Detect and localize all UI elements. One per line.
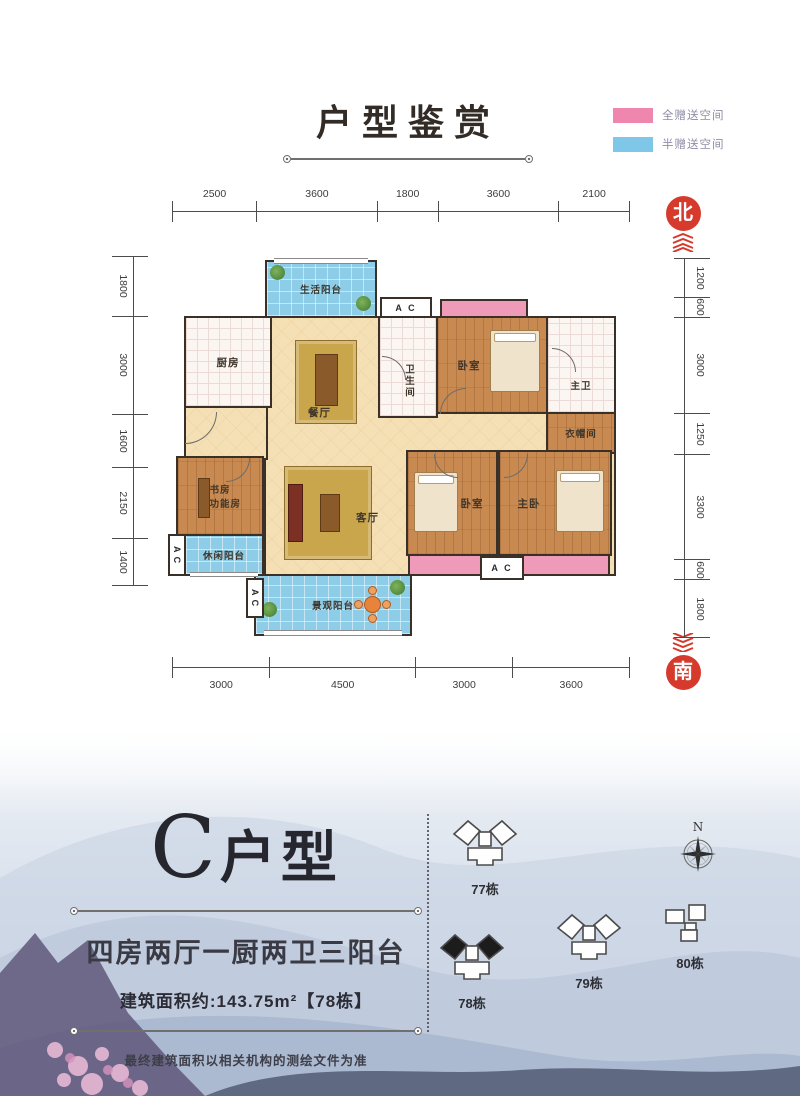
line-end-ring-icon	[414, 907, 422, 915]
desk-icon	[198, 478, 210, 518]
dimension-value: 3600	[257, 188, 377, 200]
dimension-value: 4500	[270, 679, 415, 691]
ac-platform-left: A C	[168, 534, 186, 576]
building-label: 78栋	[437, 993, 507, 1012]
dimension-value: 3600	[513, 679, 629, 691]
title-underline	[283, 155, 533, 163]
dimension-value: 1250	[694, 414, 706, 454]
building-77: 77栋	[450, 818, 520, 898]
legend-label: 半赠送空间	[662, 136, 725, 152]
building-77-icon	[451, 818, 519, 870]
room-label: 卧室	[458, 358, 481, 373]
building-label: 80栋	[662, 953, 718, 972]
full-gift-swatch-icon	[613, 108, 653, 123]
gift-bay-window-top	[440, 299, 528, 318]
room-label: 厨房	[217, 355, 240, 370]
ac-label: A C	[395, 303, 416, 313]
building-78-icon	[438, 932, 506, 984]
dimension-segment: 3000	[172, 657, 269, 678]
dimension-bottom: 3000450030003600	[172, 657, 630, 689]
bottom-section: C 户型 四房两厅一厨两卫三阳台 建筑面积约:143.75m²【78栋】 最终建…	[0, 728, 800, 1096]
floor-plan: 生活阳台 景观阳台 休闲阳台 厨房 卫生间 主卫 卧室 衣帽间 书房 多功能房	[168, 250, 668, 640]
ac-label: A C	[250, 589, 260, 607]
dimension-segment: 1400	[112, 538, 148, 586]
ac-platform-bottom: A C	[480, 556, 524, 580]
compass-n-label: N	[678, 820, 718, 834]
site-compass: N	[678, 820, 718, 879]
patio-chair-icon	[354, 600, 363, 609]
dimension-segment: 3600	[438, 201, 559, 222]
info-divider-top	[70, 907, 422, 915]
plant-icon	[390, 580, 405, 595]
dimension-value: 3000	[694, 345, 706, 385]
dimension-value: 2500	[173, 188, 256, 200]
room-label: 主卧	[518, 496, 541, 511]
line-end-ring-icon	[70, 907, 78, 915]
north-badge: 北	[663, 196, 703, 252]
dimension-segment: 1250	[674, 413, 710, 454]
dimension-segment: 1800	[377, 201, 438, 222]
unit-subtitle: 四房两厅一厨两卫三阳台	[70, 931, 422, 970]
ac-label: A C	[491, 563, 512, 573]
dimension-value: 1600	[117, 421, 129, 461]
dimension-value: 1400	[117, 542, 129, 582]
dimension-segment: 3000	[674, 317, 710, 413]
room-label: 生活阳台	[300, 282, 342, 296]
plant-icon	[262, 602, 277, 617]
building-label: 77栋	[450, 879, 520, 898]
plant-icon	[270, 265, 285, 280]
ac-label: A C	[172, 546, 182, 564]
poster-page: 户型鉴赏 全赠送空间 半赠送空间 北	[0, 0, 800, 1096]
dimension-segment: 4500	[269, 657, 415, 678]
dimension-value: 2100	[559, 188, 629, 200]
dimension-segment: 600	[674, 297, 710, 317]
dimension-right: 12006003000125033006001800	[674, 258, 710, 638]
page-header: 户型鉴赏	[283, 94, 533, 163]
room-label: 书房	[209, 482, 230, 496]
unit-title: C 户型	[70, 808, 422, 894]
info-divider-bottom	[70, 1027, 422, 1035]
window-icon	[274, 258, 368, 264]
plant-icon	[356, 296, 371, 311]
legend-label: 全赠送空间	[662, 107, 725, 123]
dimension-segment: 3600	[512, 657, 630, 678]
building-80-icon	[664, 902, 716, 944]
legend-row-full-gift: 全赠送空间	[613, 107, 725, 123]
bed-icon	[490, 330, 540, 392]
south-badge: 南	[663, 631, 703, 690]
page-title: 户型鉴赏	[283, 94, 533, 146]
dimension-segment: 2100	[558, 201, 630, 222]
dimension-segment: 2500	[172, 201, 256, 222]
bed-icon	[556, 470, 604, 532]
room-label-living: 客厅	[356, 510, 379, 525]
dimension-value: 3000	[416, 679, 512, 691]
window-icon	[264, 630, 402, 636]
dimension-segment: 2150	[112, 467, 148, 538]
north-circle: 北	[666, 196, 701, 231]
dimension-segment: 3600	[256, 201, 377, 222]
building-label: 79栋	[554, 973, 624, 992]
bed-icon	[414, 472, 458, 532]
dimension-segment: 3000	[112, 316, 148, 415]
dimension-value: 3000	[117, 345, 129, 385]
unit-disclaimer: 最终建筑面积以相关机构的测绘文件为准	[70, 1050, 422, 1069]
room-closet: 衣帽间	[546, 412, 616, 454]
room-label: 衣帽间	[565, 426, 597, 440]
line-end-ring-icon	[414, 1027, 422, 1035]
window-icon	[190, 572, 258, 577]
building-80: 80栋	[662, 902, 718, 972]
legend: 全赠送空间 半赠送空间	[613, 107, 725, 165]
patio-chair-icon	[368, 586, 377, 595]
patio-chair-icon	[368, 614, 377, 623]
dimension-value: 2150	[117, 483, 129, 523]
patio-chair-icon	[382, 600, 391, 609]
building-78-highlighted: 78栋	[437, 932, 507, 1012]
dimension-value: 1800	[117, 266, 129, 306]
room-label: 休闲阳台	[203, 548, 245, 562]
dimension-value: 3300	[694, 487, 706, 527]
dimension-value: 1800	[694, 589, 706, 629]
line-end-ring-icon	[283, 155, 291, 163]
dimension-segment: 3300	[674, 454, 710, 559]
room-label: 卧室	[461, 496, 484, 511]
line-end-ring-icon	[525, 155, 533, 163]
unit-area: 建筑面积约:143.75m²【78栋】	[70, 987, 422, 1012]
coffee-table-icon	[320, 494, 340, 532]
building-79-icon	[555, 912, 623, 964]
dimension-segment: 600	[674, 559, 710, 579]
room-kitchen: 厨房	[184, 316, 272, 408]
dimension-left: 18003000160021501400	[112, 256, 148, 586]
legend-row-half-gift: 半赠送空间	[613, 136, 725, 152]
dining-table-icon	[315, 354, 338, 406]
unit-info: C 户型 四房两厅一厨两卫三阳台 建筑面积约:143.75m²【78栋】 最终建…	[70, 808, 422, 1069]
room-label: 景观阳台	[312, 598, 354, 612]
dimension-value: 3000	[173, 679, 269, 691]
patio-table-icon	[364, 596, 381, 613]
room-label: 主卫	[570, 378, 591, 392]
south-circle: 南	[666, 655, 701, 690]
dimension-segment: 1800	[112, 256, 148, 316]
compass-rose-icon	[678, 834, 718, 874]
unit-name: 户型	[220, 813, 342, 894]
sofa-icon	[288, 484, 303, 542]
dimension-segment: 3000	[415, 657, 512, 678]
room-study: 书房 多功能房	[176, 456, 264, 536]
dimension-segment: 1800	[674, 579, 710, 638]
dimension-segment: 1600	[112, 414, 148, 467]
ac-platform-top: A C	[380, 297, 432, 318]
dimension-value: 3600	[439, 188, 559, 200]
room-leisure-balcony: 休闲阳台	[184, 534, 264, 576]
half-gift-swatch-icon	[613, 137, 653, 152]
dimension-value: 1800	[378, 188, 438, 200]
unit-letter: C	[150, 808, 216, 890]
ac-platform-balcony: A C	[246, 578, 264, 618]
line-end-ring-icon	[70, 1027, 78, 1035]
room-label-dining: 餐厅	[308, 405, 331, 420]
dimension-top: 25003600180036002100	[172, 190, 630, 222]
building-79: 79栋	[554, 912, 624, 992]
north-chevrons-icon	[670, 233, 696, 252]
dotted-divider	[427, 814, 429, 1032]
